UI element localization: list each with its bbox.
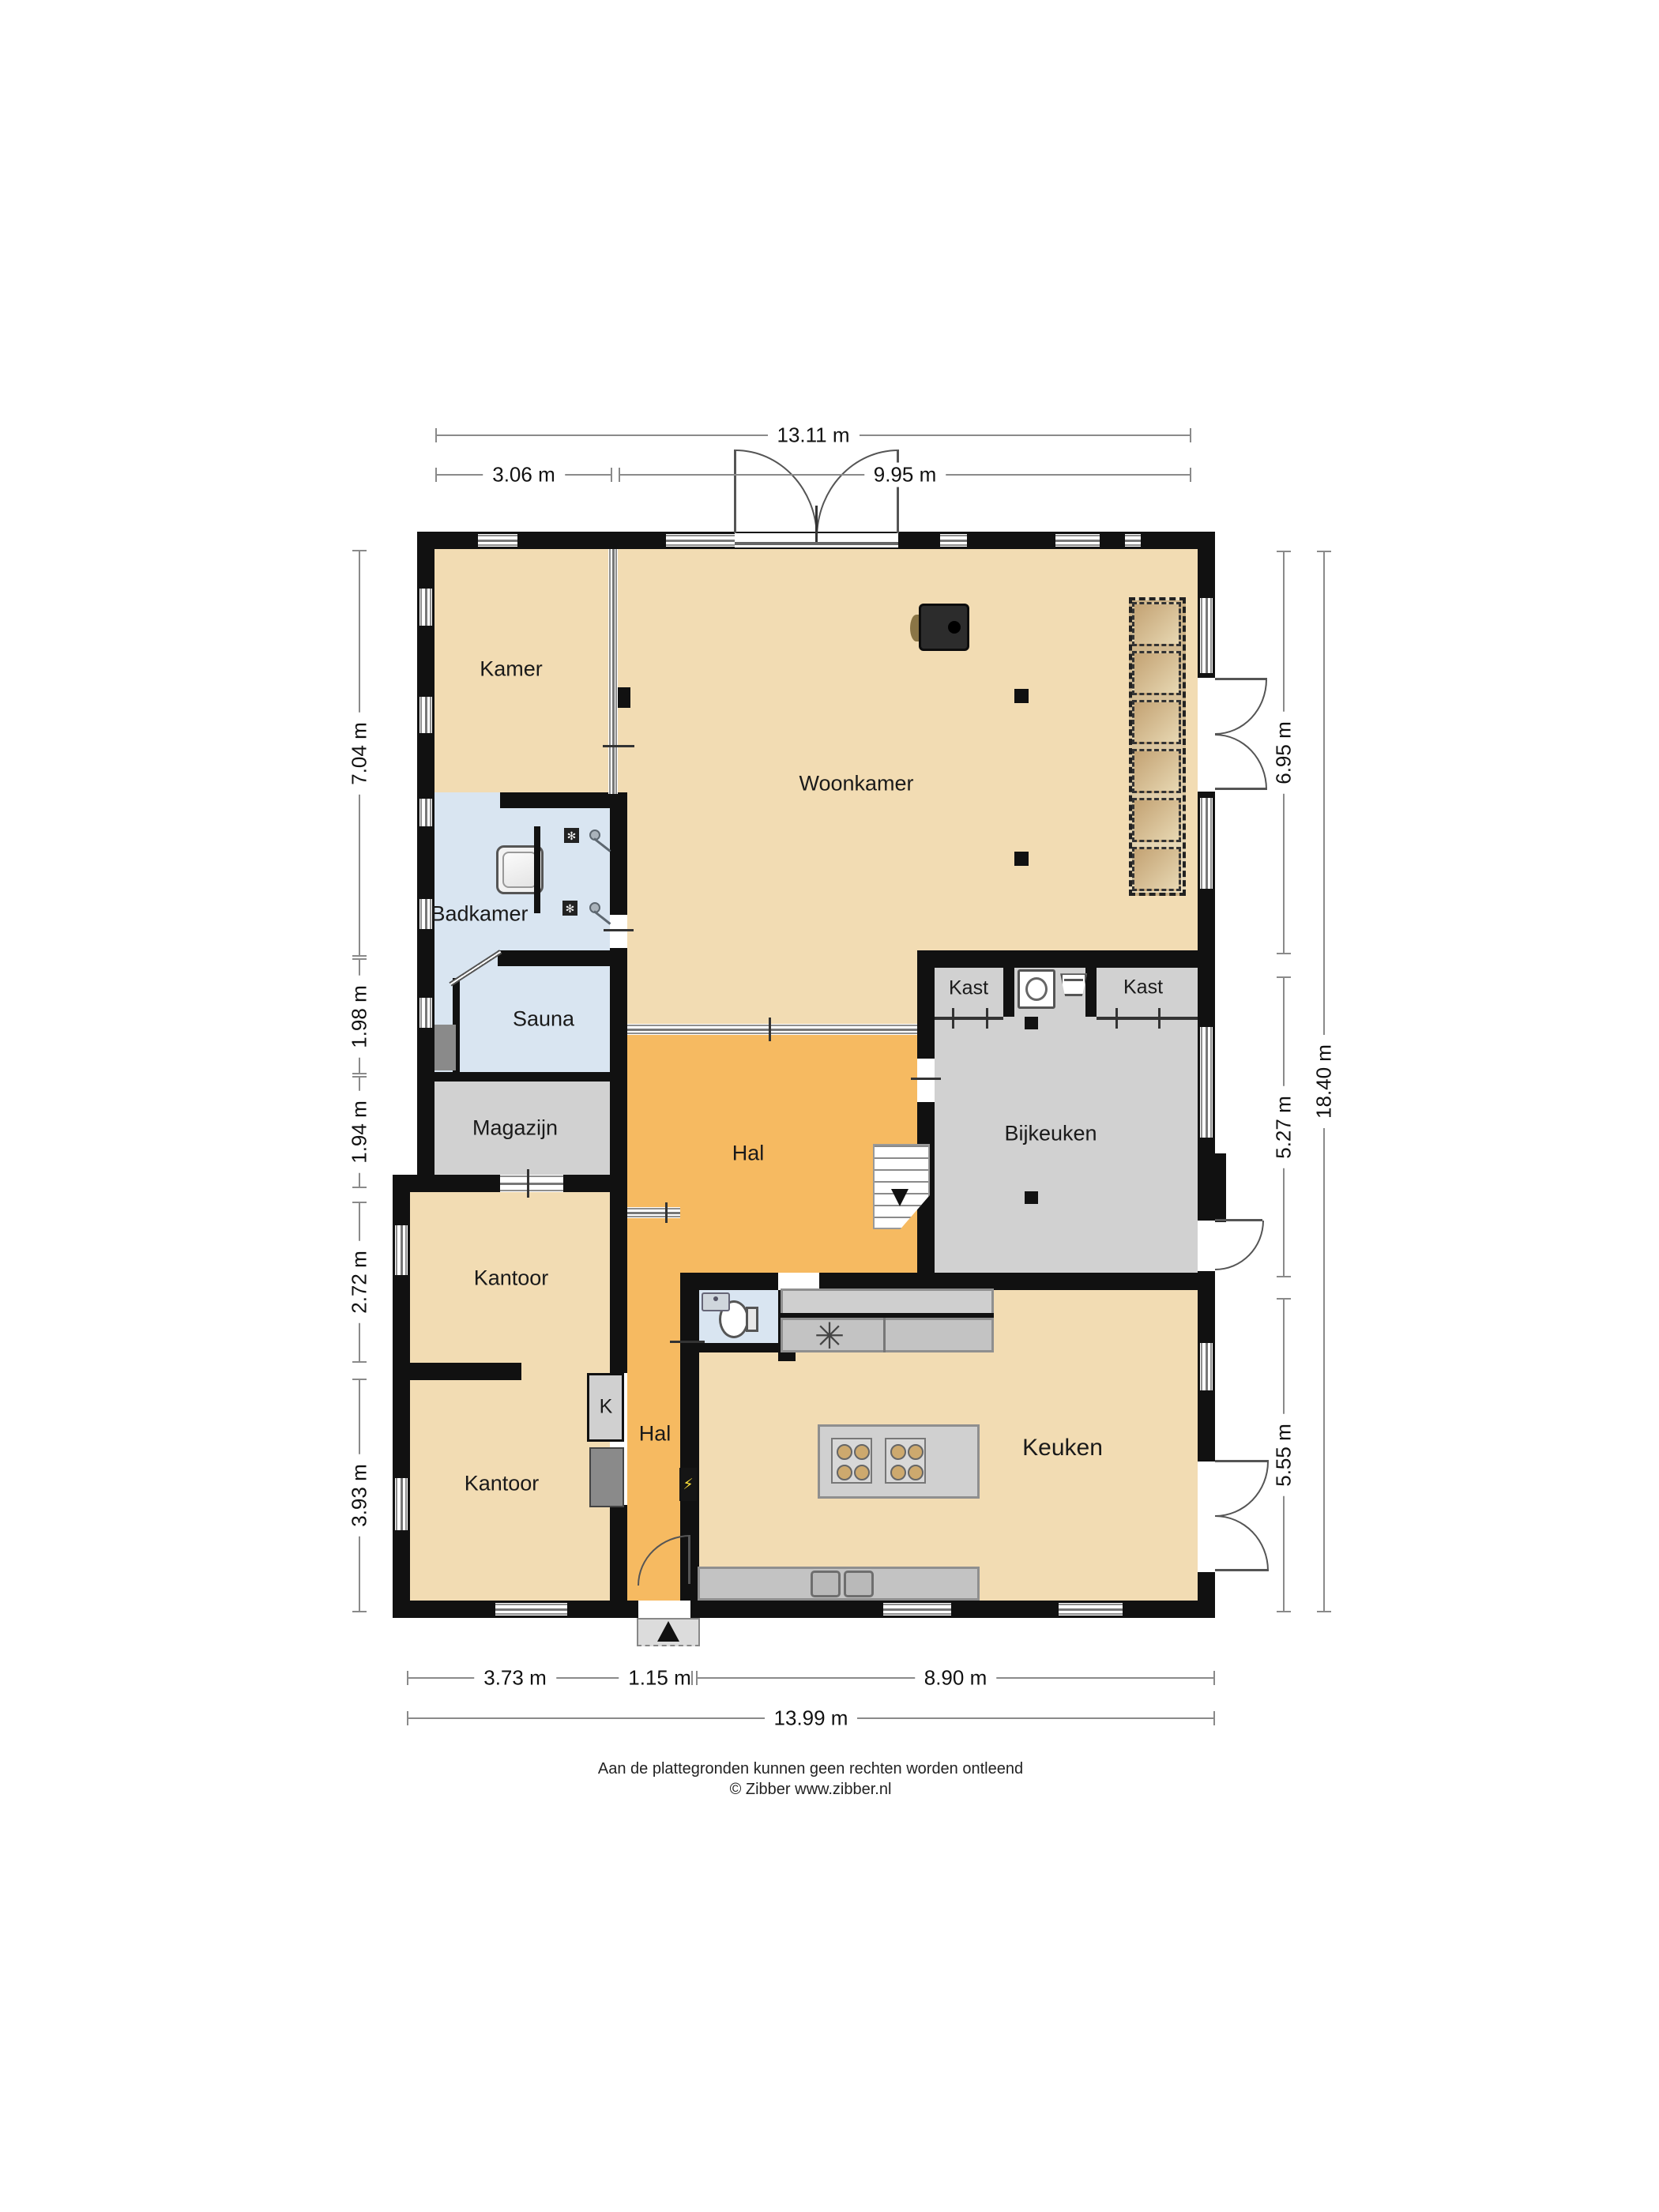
column-post bbox=[1014, 689, 1029, 703]
door-opening bbox=[610, 915, 627, 948]
door-opening bbox=[1198, 678, 1215, 792]
column-post bbox=[1014, 852, 1029, 866]
dim-left-2: 1.98 m bbox=[359, 958, 360, 1074]
wall bbox=[917, 950, 1215, 968]
window bbox=[395, 1225, 408, 1275]
wall-tick bbox=[1158, 1008, 1161, 1029]
wall bbox=[393, 1175, 500, 1192]
gas-hob-icon bbox=[831, 1438, 872, 1484]
copyright-text: © Zibber www.zibber.nl bbox=[730, 1781, 892, 1799]
glass-partition bbox=[627, 1024, 917, 1035]
sink-icon bbox=[811, 1571, 841, 1597]
window bbox=[1059, 1603, 1123, 1616]
wall bbox=[417, 532, 434, 1192]
room-label-kast-links: Kast bbox=[949, 977, 988, 1000]
wall-tick bbox=[1115, 1008, 1118, 1029]
wall-tick bbox=[527, 1169, 529, 1198]
built-in-cabinet bbox=[1132, 847, 1181, 891]
window bbox=[495, 1603, 567, 1616]
column-post bbox=[1025, 1191, 1038, 1204]
wall-tick bbox=[952, 1008, 954, 1029]
built-in-cabinet bbox=[1132, 651, 1181, 695]
wall bbox=[498, 950, 610, 966]
glass-partition bbox=[500, 1175, 563, 1192]
room-label-kantoor-onder: Kantoor bbox=[465, 1472, 540, 1496]
door-threshold bbox=[735, 542, 898, 545]
dim-top-left: 3.06 m bbox=[435, 474, 612, 476]
room-label-magazijn: Magazijn bbox=[472, 1116, 558, 1141]
wall bbox=[699, 1273, 778, 1290]
wall bbox=[563, 1175, 627, 1192]
window bbox=[666, 534, 739, 547]
dim-right-total: 18.40 m bbox=[1323, 551, 1325, 1612]
wood-stove-icon bbox=[919, 604, 969, 651]
kast-rail bbox=[1097, 1017, 1198, 1020]
window bbox=[419, 799, 432, 826]
counter-divider bbox=[883, 1318, 886, 1352]
stair-direction-arrow-icon bbox=[891, 1189, 908, 1206]
window bbox=[1200, 598, 1213, 673]
column-post bbox=[1025, 1017, 1038, 1029]
disclaimer-text: Aan de plattegronden kunnen geen rechten… bbox=[598, 1760, 1023, 1778]
door-opening bbox=[1198, 1461, 1215, 1572]
gas-hob-icon bbox=[885, 1438, 926, 1484]
wall-tick bbox=[603, 745, 634, 747]
built-in-cabinet bbox=[1132, 602, 1181, 646]
wall bbox=[819, 1273, 1198, 1290]
wall bbox=[1003, 968, 1014, 1017]
wall-tick bbox=[670, 1341, 705, 1343]
wall bbox=[1085, 968, 1097, 1017]
dim-bottom-2: 1.15 m bbox=[626, 1677, 693, 1679]
kitchen-counter bbox=[781, 1288, 994, 1315]
wall-tick bbox=[911, 1078, 941, 1080]
toilet-tank bbox=[746, 1307, 758, 1332]
door-opening bbox=[638, 1601, 690, 1618]
washing-machine-icon bbox=[1018, 969, 1055, 1009]
sink-icon bbox=[844, 1571, 874, 1597]
built-in-cabinet bbox=[1132, 749, 1181, 793]
room-label-bijkeuken: Bijkeuken bbox=[1004, 1122, 1097, 1146]
window bbox=[940, 534, 967, 547]
wall-tick bbox=[665, 1202, 668, 1223]
electrical-panel-icon: ⚡ bbox=[679, 1468, 697, 1501]
wall-tick bbox=[815, 506, 818, 542]
dim-left-3: 1.94 m bbox=[359, 1076, 360, 1188]
door-swing-arc bbox=[1215, 1461, 1269, 1517]
dim-left-5: 3.93 m bbox=[359, 1379, 360, 1612]
door-swing-arc bbox=[735, 450, 818, 538]
entrance-arrow-icon bbox=[657, 1621, 679, 1642]
dim-left-4: 2.72 m bbox=[359, 1202, 360, 1363]
dim-right-1: 6.95 m bbox=[1283, 551, 1285, 954]
window bbox=[1055, 534, 1100, 547]
glass-partition bbox=[608, 549, 618, 794]
window bbox=[478, 534, 517, 547]
wall bbox=[417, 1072, 627, 1082]
room-label-badkamer: Badkamer bbox=[431, 902, 528, 927]
window bbox=[1200, 1343, 1213, 1390]
dim-top-right: 9.95 m bbox=[619, 474, 1191, 476]
door-opening bbox=[1198, 1221, 1215, 1271]
wall bbox=[500, 792, 610, 808]
window bbox=[395, 1478, 408, 1530]
room-label-kast-rechts: Kast bbox=[1123, 976, 1163, 999]
room-label-kast-k: K bbox=[600, 1396, 613, 1419]
room-label-kamer: Kamer bbox=[480, 657, 543, 682]
wall bbox=[610, 792, 627, 915]
dim-left-1: 7.04 m bbox=[359, 550, 360, 957]
door-opening bbox=[917, 1059, 935, 1102]
wall-tick bbox=[769, 1018, 771, 1041]
room-label-kantoor-boven: Kantoor bbox=[474, 1266, 549, 1291]
glass-partition bbox=[627, 1207, 680, 1218]
room-label-hal-boven: Hal bbox=[732, 1142, 765, 1166]
boiler-cupboard bbox=[589, 1447, 624, 1507]
vent-icon: ✻ bbox=[564, 828, 579, 843]
wall-tick bbox=[986, 1008, 988, 1029]
wall bbox=[699, 1343, 778, 1352]
wall bbox=[917, 968, 935, 1059]
dim-top-total: 13.11 m bbox=[435, 434, 1191, 436]
magazijn-niche bbox=[434, 1025, 456, 1070]
dim-bottom-1: 3.73 m bbox=[407, 1677, 623, 1679]
kitchen-counter bbox=[781, 1318, 994, 1352]
extractor-fan-icon: ✳ bbox=[814, 1318, 845, 1354]
window bbox=[419, 697, 432, 733]
floorplan-canvas: ✻ ✻ ✳ ⚡ Kamer Woonkamer Badkamer bbox=[0, 0, 1659, 2212]
door-swing-arc bbox=[1215, 1515, 1269, 1571]
built-in-cabinet bbox=[1132, 700, 1181, 744]
kast-rail bbox=[935, 1017, 1003, 1020]
dim-bottom-3: 8.90 m bbox=[696, 1677, 1215, 1679]
wall-tick bbox=[604, 929, 634, 931]
wall bbox=[610, 1192, 627, 1373]
door-swing-arc bbox=[1215, 1221, 1264, 1270]
window bbox=[1200, 798, 1213, 889]
wall bbox=[610, 1505, 627, 1601]
window bbox=[1200, 1027, 1213, 1138]
window bbox=[419, 589, 432, 626]
door-opening bbox=[778, 1273, 819, 1290]
dim-right-3: 5.55 m bbox=[1283, 1298, 1285, 1612]
room-label-woonkamer: Woonkamer bbox=[799, 772, 913, 796]
built-in-cabinet bbox=[1132, 798, 1181, 842]
door-swing-arc bbox=[1215, 679, 1267, 735]
dim-right-2: 5.27 m bbox=[1283, 976, 1285, 1277]
wall bbox=[610, 948, 627, 1192]
shower-screen bbox=[534, 826, 540, 913]
wall bbox=[410, 1363, 521, 1380]
room-label-hal-onder: Hal bbox=[639, 1422, 671, 1446]
window bbox=[419, 998, 432, 1028]
vent-icon: ✻ bbox=[562, 901, 577, 916]
door-swing-arc bbox=[1215, 734, 1267, 789]
wall bbox=[1198, 1153, 1226, 1222]
room-label-sauna: Sauna bbox=[513, 1007, 574, 1032]
window bbox=[883, 1603, 951, 1616]
room-label-keuken: Keuken bbox=[1022, 1435, 1103, 1461]
dim-bottom-total: 13.99 m bbox=[407, 1717, 1215, 1719]
hand-basin-icon bbox=[702, 1292, 730, 1311]
window bbox=[1125, 534, 1141, 547]
